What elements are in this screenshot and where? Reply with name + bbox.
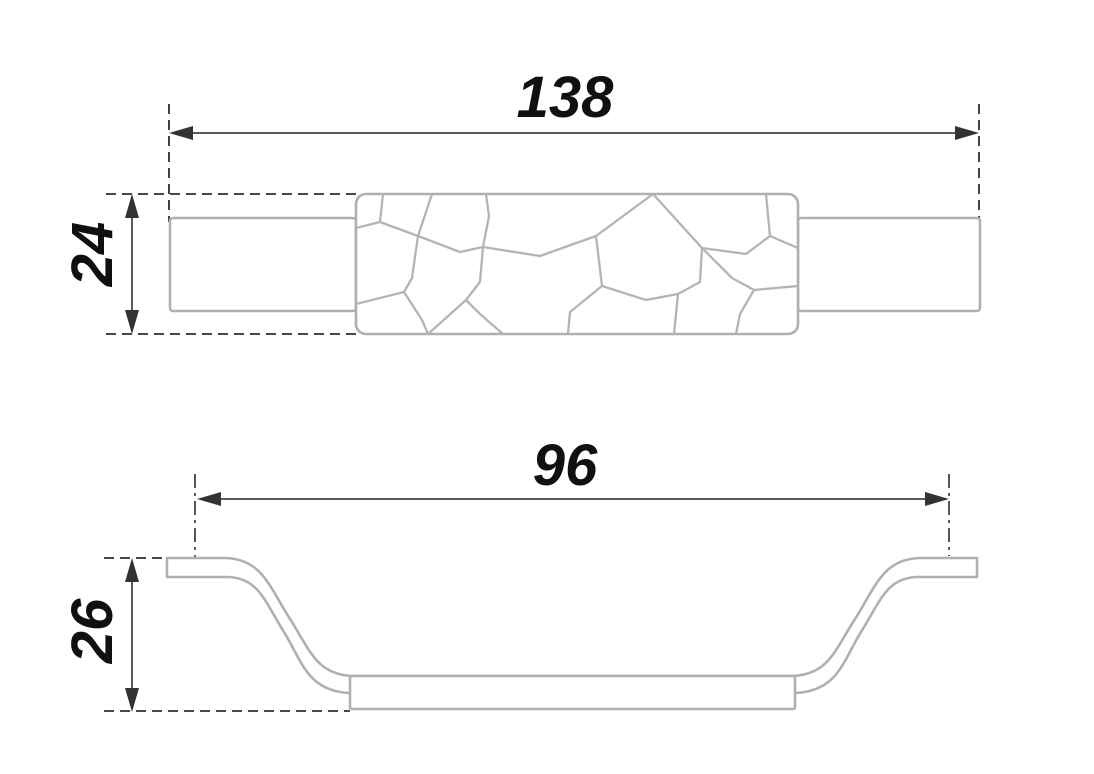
- handle-right-bar: [798, 218, 980, 311]
- dimension-value-height: 24: [60, 222, 125, 288]
- dimension-value-hole-spacing: 96: [533, 433, 598, 498]
- dimension-length-138: 138: [169, 65, 979, 140]
- arrowhead-right: [925, 492, 949, 506]
- technical-drawing-canvas: 138 24 96: [0, 0, 1094, 774]
- handle-center-plate: [350, 676, 795, 709]
- dimension-value-length: 138: [517, 65, 615, 130]
- arrowhead-left: [169, 126, 193, 140]
- dimension-height-24: 24: [60, 194, 139, 334]
- side-view: 96 26: [60, 433, 977, 712]
- handle-left-bar: [170, 218, 356, 311]
- top-view: 138 24: [60, 65, 980, 334]
- arrowhead-up: [125, 194, 139, 218]
- dimension-height-26: 26: [60, 558, 139, 712]
- arrowhead-down: [125, 310, 139, 334]
- dimension-value-height: 26: [60, 598, 125, 664]
- dimension-hole-spacing-96: 96: [197, 433, 949, 506]
- handle-profile-strap: [167, 558, 977, 693]
- arrowhead-up: [125, 558, 139, 582]
- handle-center-section: [356, 194, 798, 334]
- arrowhead-left: [197, 492, 221, 506]
- arrowhead-down: [125, 688, 139, 712]
- drawing-svg: 138 24 96: [0, 0, 1094, 774]
- arrowhead-right: [955, 126, 979, 140]
